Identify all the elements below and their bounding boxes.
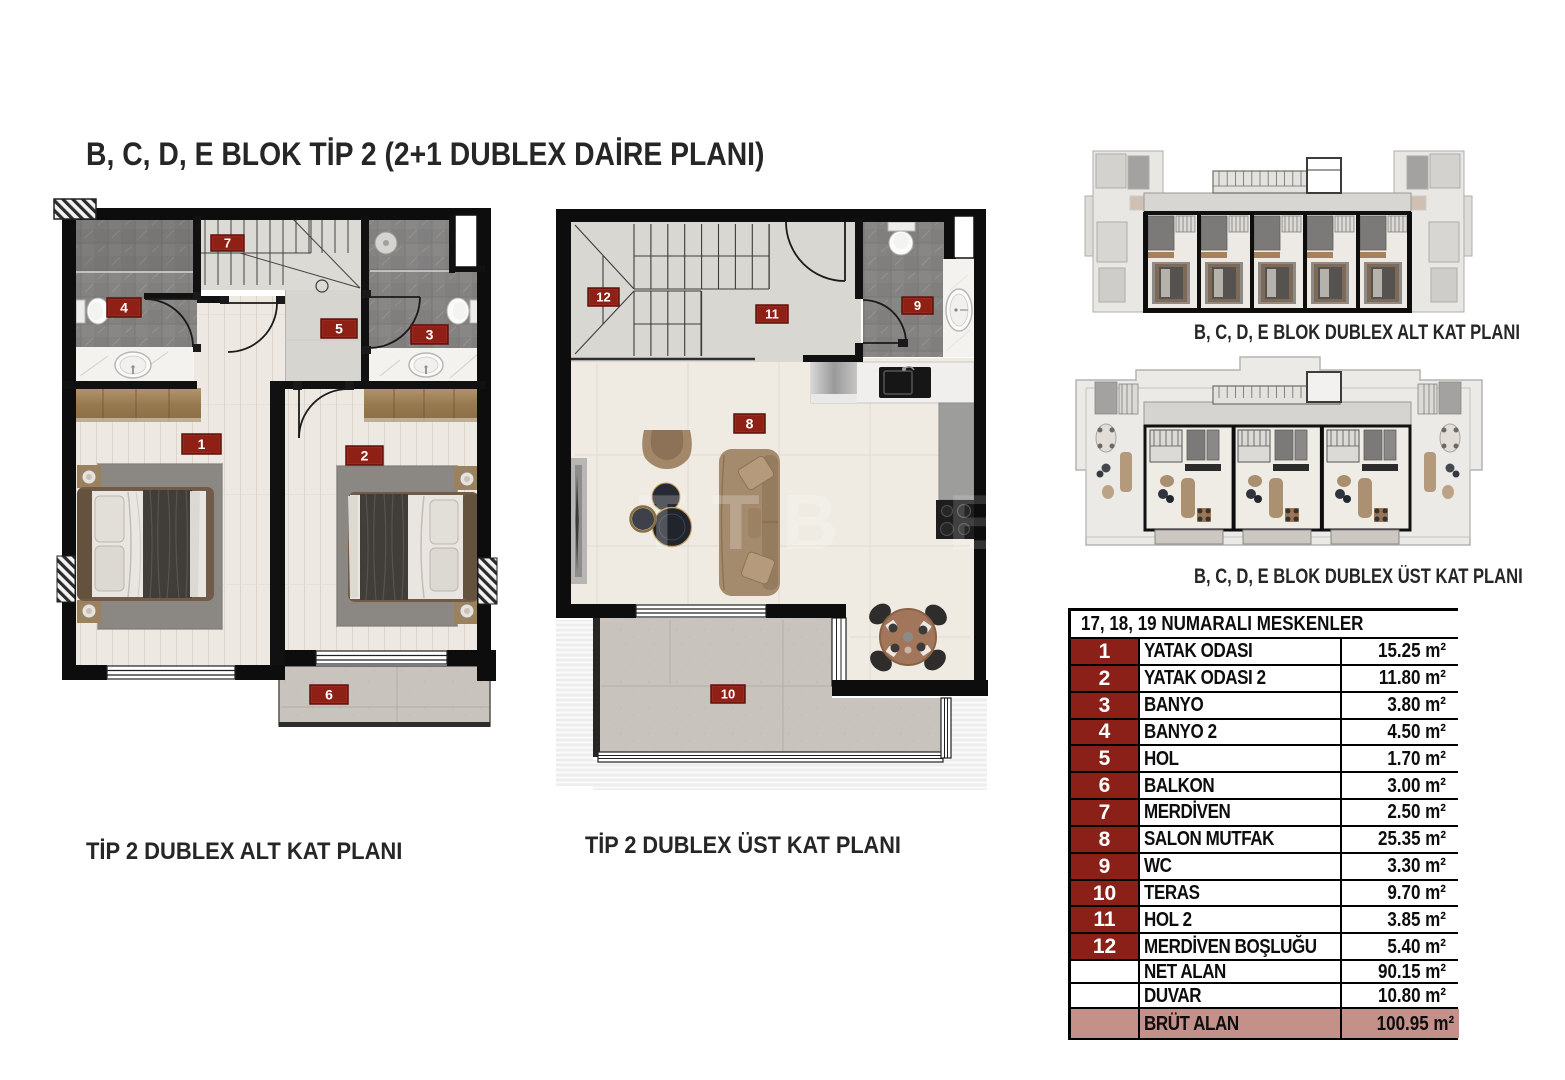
svg-text:8: 8: [746, 416, 754, 432]
svg-text:11: 11: [765, 307, 779, 322]
svg-text:4: 4: [120, 300, 128, 316]
svg-text:1: 1: [198, 436, 206, 452]
svg-text:T: T: [638, 478, 686, 566]
svg-text:10: 10: [721, 687, 735, 702]
svg-text:6: 6: [325, 687, 333, 703]
svg-text:2: 2: [361, 448, 369, 464]
svg-text:5: 5: [335, 321, 343, 337]
svg-text:7: 7: [224, 236, 231, 251]
svg-text:T: T: [712, 478, 760, 566]
svg-text:E: E: [948, 478, 1000, 566]
svg-text:3: 3: [426, 327, 434, 343]
svg-text:9: 9: [914, 298, 921, 313]
svg-text:12: 12: [596, 290, 610, 305]
svg-text:B: B: [782, 478, 838, 566]
